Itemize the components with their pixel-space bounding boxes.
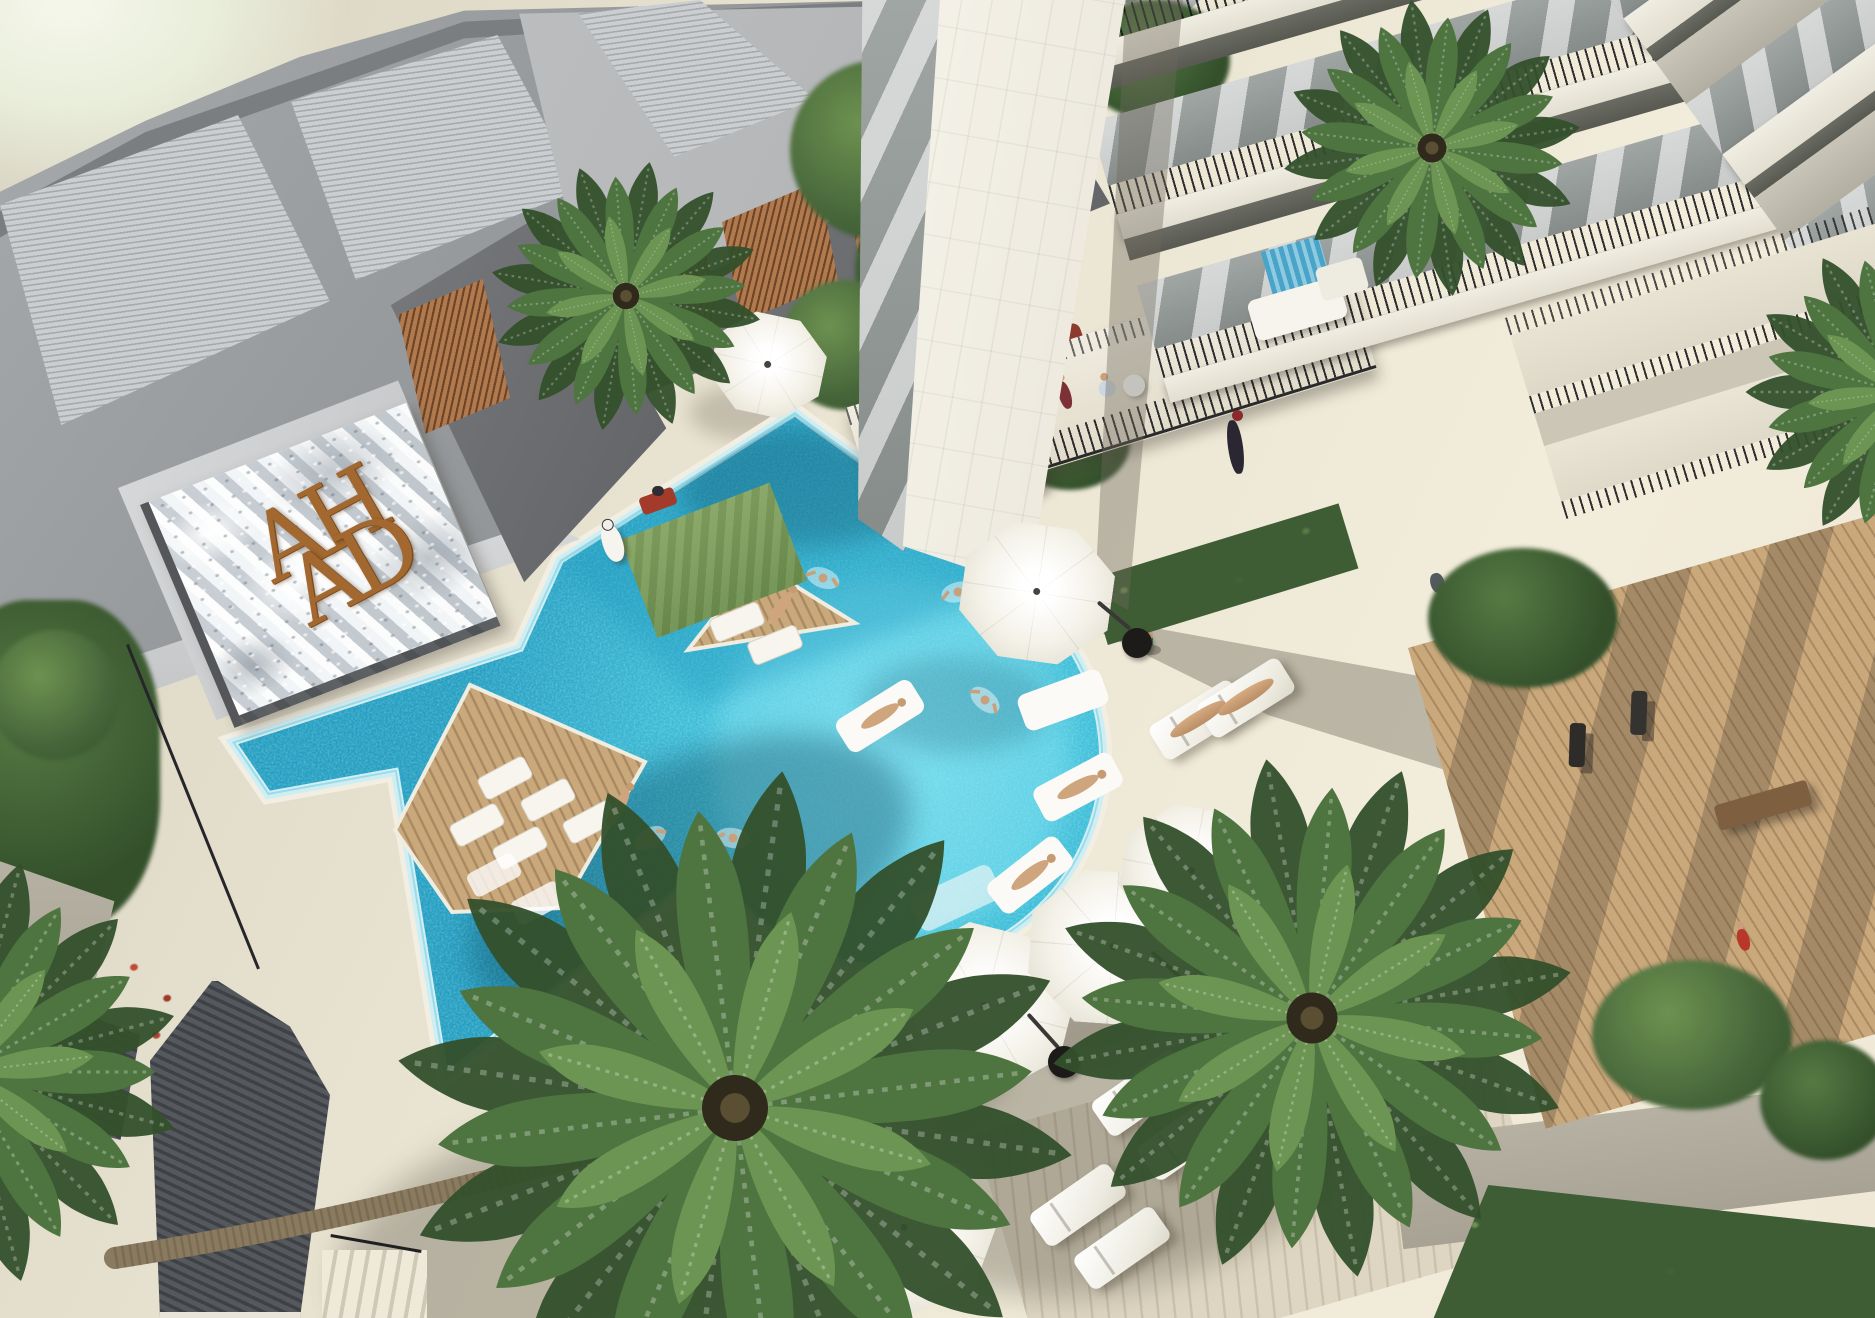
palm-layer xyxy=(0,0,1875,1318)
palm-tree-large xyxy=(351,724,1119,1318)
palm-tree-tower xyxy=(1238,0,1627,342)
palm-tree-right-edge xyxy=(1689,181,1875,603)
aerial-resort-rendering: AH AD xyxy=(0,0,1875,1318)
palm-tree-right xyxy=(942,648,1682,1318)
palm-tree-top xyxy=(452,122,801,471)
